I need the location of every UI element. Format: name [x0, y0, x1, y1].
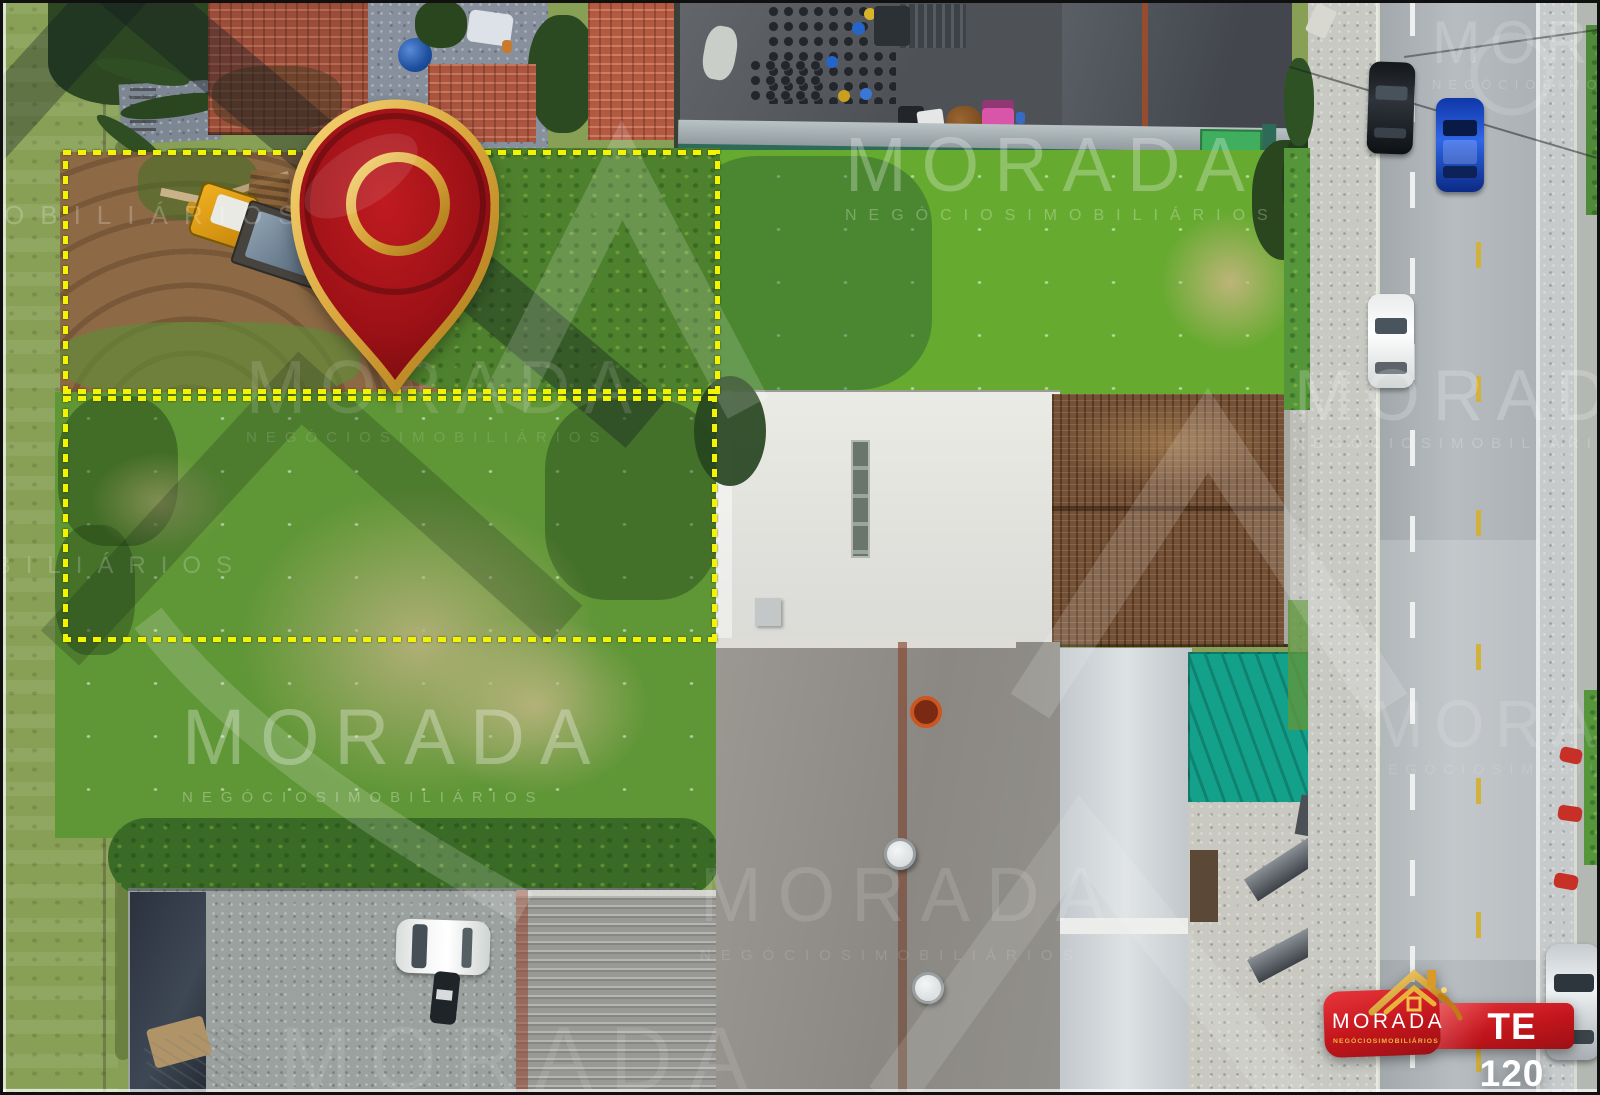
roof-vent-round [884, 838, 916, 870]
roof-ridge [1052, 506, 1288, 511]
rust-streak [516, 890, 528, 1095]
dark-machine [874, 6, 910, 46]
aerial-listing-photo: MORADA NEGÓCIOSIMOBILIÁRIOS MORADA NEGÓC… [0, 0, 1600, 1095]
listing-code: TE 120 [1450, 1003, 1574, 1049]
car-black [1366, 61, 1415, 155]
grass-strip [1584, 690, 1600, 865]
road-shoulder [1540, 0, 1576, 1095]
blue-barrel [852, 22, 865, 35]
grass-strip [1586, 25, 1600, 215]
rear-glass [1375, 362, 1407, 374]
red-roof-mark [910, 696, 942, 728]
roof-vent-box [755, 598, 781, 626]
map-pin-icon [283, 92, 499, 394]
badge-brand-tagline: NEGÓCIOSIMOBILIÁRIOS [1333, 1038, 1439, 1045]
blue-barrel [860, 88, 872, 100]
dry-grass-patch [90, 452, 230, 552]
red-roadside-marker [1557, 804, 1583, 822]
sidewalk [1308, 0, 1378, 1095]
ridge-cap-white [716, 638, 1016, 648]
motorcycle-cart [429, 971, 460, 1025]
roof-gap-white [1060, 918, 1192, 934]
cart-detail [436, 989, 453, 1001]
lane-dash-line [1410, 0, 1415, 1095]
bush [415, 0, 467, 48]
skylight [851, 440, 870, 558]
wood-stack [1190, 850, 1218, 922]
rear-glass [1443, 166, 1477, 178]
yellow-barrel [838, 90, 850, 102]
badge-brand-name: MORADA [1332, 1010, 1445, 1034]
corrugated-roof [516, 890, 720, 1095]
listing-badge: TE 120 MORADA NEGÓCIOSIMOBILIÁRIOS [1318, 958, 1580, 1062]
silver-roof [1060, 648, 1192, 1095]
warehouse-roof-dark [1062, 0, 1292, 130]
car-blue [1436, 98, 1484, 192]
worn-tile-patch [1060, 398, 1280, 488]
hedge-row [108, 818, 720, 896]
grass-verge [1288, 600, 1308, 730]
rust-pipe [1142, 0, 1148, 134]
windshield [1375, 85, 1407, 100]
grass-verge [1284, 148, 1310, 410]
roof-highlight [1443, 140, 1477, 164]
palm-over-roof [694, 376, 766, 486]
parked-car-white [395, 918, 491, 975]
roof-vent-round [912, 972, 944, 1004]
person [502, 40, 512, 53]
windshield [1375, 318, 1407, 334]
windshield [411, 924, 428, 968]
warehouse-roof-gray [716, 642, 1060, 1095]
worker [1016, 112, 1025, 124]
road-light-wash [1380, 540, 1544, 960]
blue-barrel [826, 56, 838, 68]
rear-glass [1374, 127, 1406, 138]
car-white [1368, 294, 1414, 388]
barrel-grid [748, 58, 822, 106]
rear-glass [461, 928, 472, 968]
dry-grass-patch [420, 615, 650, 795]
windshield [1443, 120, 1477, 136]
